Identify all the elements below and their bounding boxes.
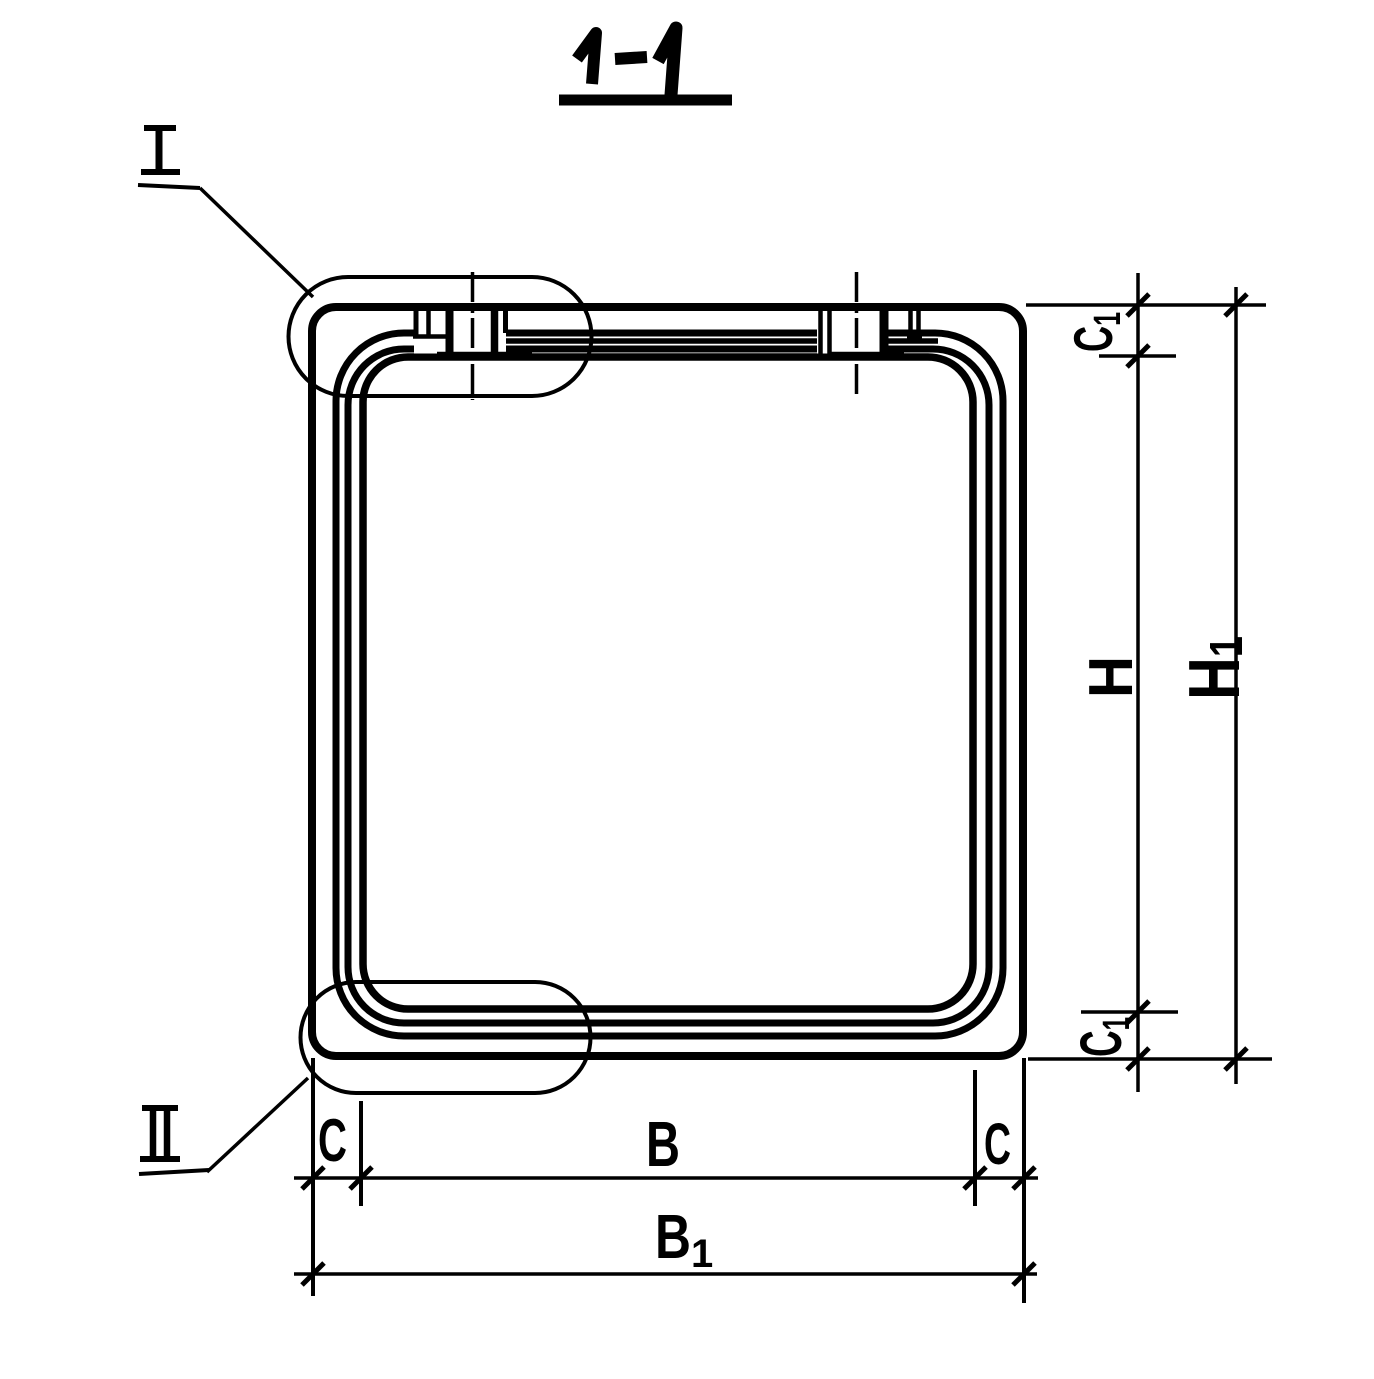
svg-text:B: B — [646, 1108, 680, 1180]
svg-text:B: B — [655, 1203, 691, 1272]
svg-text:C: C — [984, 1112, 1011, 1177]
svg-text:1: 1 — [691, 1232, 713, 1276]
svg-text:C: C — [318, 1107, 347, 1174]
svg-text:H: H — [1077, 656, 1146, 698]
